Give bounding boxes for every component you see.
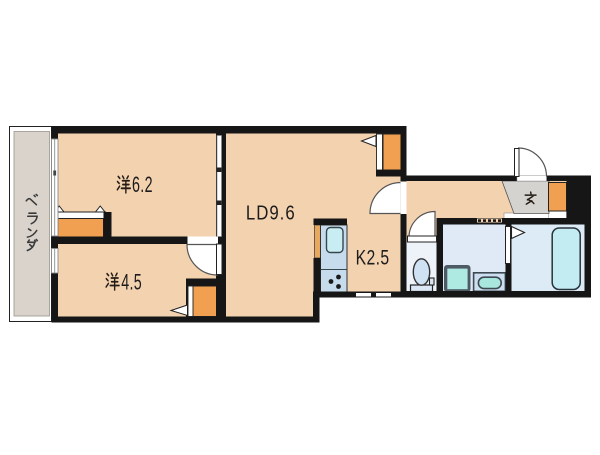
svg-text:4.5: 4.5 [121, 270, 142, 295]
svg-text:LD9.6: LD9.6 [246, 201, 296, 224]
svg-text:K2.5: K2.5 [356, 245, 390, 269]
svg-text:6.2: 6.2 [132, 172, 153, 197]
